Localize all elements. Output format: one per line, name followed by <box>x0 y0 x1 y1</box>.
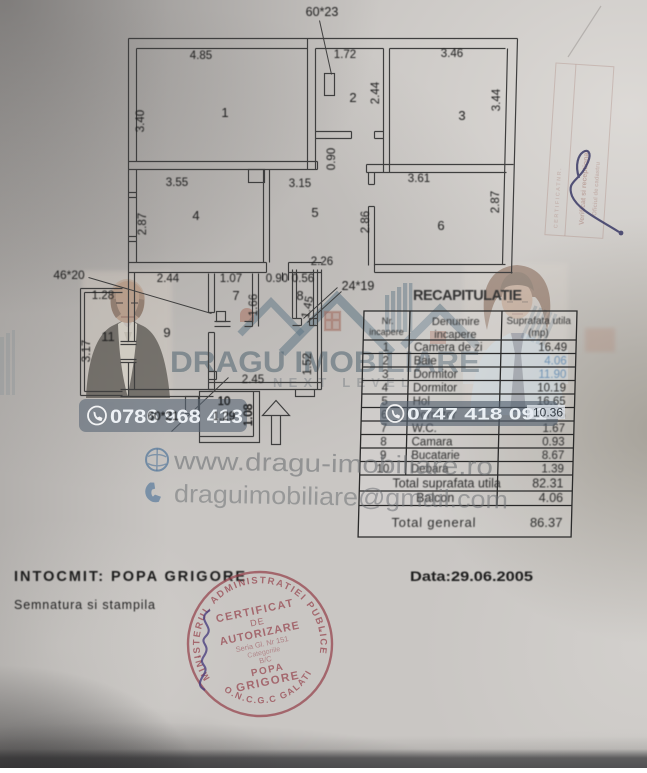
svg-text:INTOCMIT: POPA GRIGORE: INTOCMIT: POPA GRIGORE <box>14 569 245 585</box>
svg-text:Oficiul de cadastru: Oficiul de cadastru <box>592 161 601 216</box>
svg-text:2.26: 2.26 <box>311 256 333 268</box>
svg-text:1.66: 1.66 <box>248 294 260 316</box>
svg-text:46*20: 46*20 <box>53 268 85 282</box>
svg-text:3.17: 3.17 <box>81 340 93 362</box>
svg-text:3.15: 3.15 <box>289 178 311 190</box>
svg-text:Suprafata utila: Suprafata utila <box>506 316 571 327</box>
svg-text:RECAPITULATIE: RECAPITULATIE <box>413 288 522 304</box>
svg-text:8.67: 8.67 <box>542 450 565 462</box>
svg-text:10.19: 10.19 <box>537 383 566 395</box>
svg-text:1.28: 1.28 <box>92 290 114 302</box>
svg-text:2: 2 <box>382 356 389 368</box>
svg-text:3.46: 3.46 <box>441 48 463 60</box>
svg-text:www.dragu-imobiliare.ro: www.dragu-imobiliare.ro <box>173 447 494 481</box>
svg-text:1: 1 <box>383 342 390 354</box>
svg-text:5: 5 <box>311 205 318 220</box>
svg-text:4: 4 <box>192 208 199 223</box>
svg-text:1.72: 1.72 <box>334 49 356 61</box>
svg-text:3.40: 3.40 <box>135 110 147 132</box>
svg-text:0747 418 091: 0747 418 091 <box>407 405 547 424</box>
svg-text:Camera de zi: Camera de zi <box>414 342 483 354</box>
svg-text:Dormitor: Dormitor <box>413 369 458 381</box>
svg-text:9: 9 <box>163 325 170 340</box>
svg-text:Semnatura si stampila: Semnatura si stampila <box>14 598 155 612</box>
svg-text:1.52: 1.52 <box>302 353 314 375</box>
svg-text:Baie: Baie <box>414 356 437 368</box>
svg-text:Data:29.06.2005: Data:29.06.2005 <box>410 568 533 584</box>
svg-text:24*19: 24*19 <box>342 279 375 293</box>
svg-text:1.39: 1.39 <box>541 464 564 476</box>
svg-text:7: 7 <box>232 288 239 303</box>
svg-text:8: 8 <box>380 437 387 449</box>
svg-text:6: 6 <box>437 218 444 233</box>
svg-text:2.45: 2.45 <box>242 374 264 386</box>
svg-text:incapere: incapere <box>369 327 404 337</box>
svg-text:2: 2 <box>349 90 356 105</box>
svg-text:0.90: 0.90 <box>266 273 288 285</box>
svg-text:Camara: Camara <box>411 437 453 449</box>
svg-text:3.44: 3.44 <box>491 88 503 111</box>
svg-text:4.06: 4.06 <box>544 356 567 368</box>
svg-text:16.49: 16.49 <box>538 342 567 354</box>
svg-text:incapere: incapere <box>434 329 477 341</box>
svg-text:2.87: 2.87 <box>490 191 502 213</box>
svg-text:11.90: 11.90 <box>538 369 566 381</box>
svg-text:3.55: 3.55 <box>166 177 188 189</box>
svg-text:0.56: 0.56 <box>292 273 314 285</box>
svg-text:1: 1 <box>221 105 228 120</box>
svg-text:4.85: 4.85 <box>190 50 212 62</box>
svg-text:(mp): (mp) <box>528 328 549 339</box>
svg-text:86.37: 86.37 <box>530 515 563 530</box>
svg-text:2.44: 2.44 <box>157 273 180 285</box>
svg-text:10.36: 10.36 <box>533 406 563 420</box>
svg-text:draguimobiliare@gmail.com: draguimobiliare@gmail.com <box>174 480 508 514</box>
svg-text:0.90: 0.90 <box>326 148 338 170</box>
svg-text:4.06: 4.06 <box>539 491 564 505</box>
svg-text:3: 3 <box>458 108 465 123</box>
svg-text:60*21: 60*21 <box>147 409 179 423</box>
svg-text:1.08: 1.08 <box>243 404 255 426</box>
svg-text:1.29: 1.29 <box>213 411 235 423</box>
svg-text:2.86: 2.86 <box>360 211 372 233</box>
svg-text:8: 8 <box>296 288 303 303</box>
svg-text:3: 3 <box>382 369 389 381</box>
svg-text:Total general: Total general <box>391 515 476 530</box>
svg-text:11: 11 <box>101 329 115 344</box>
svg-text:Denumire: Denumire <box>432 316 480 328</box>
svg-text:10: 10 <box>218 396 231 408</box>
svg-text:82.31: 82.31 <box>532 477 564 491</box>
svg-text:4: 4 <box>382 383 389 395</box>
svg-text:C E R T I F I C A T N R .: C E R T I F I C A T N R . <box>553 168 563 229</box>
svg-text:2.87: 2.87 <box>137 213 149 235</box>
svg-text:3.61: 3.61 <box>408 173 430 185</box>
svg-text:60*23: 60*23 <box>306 5 339 19</box>
svg-text:Dormitor: Dormitor <box>413 383 458 395</box>
svg-text:2.44: 2.44 <box>370 81 382 104</box>
svg-text:1.07: 1.07 <box>220 273 242 285</box>
svg-text:Nr.: Nr. <box>382 316 394 327</box>
svg-text:0.93: 0.93 <box>542 437 565 449</box>
